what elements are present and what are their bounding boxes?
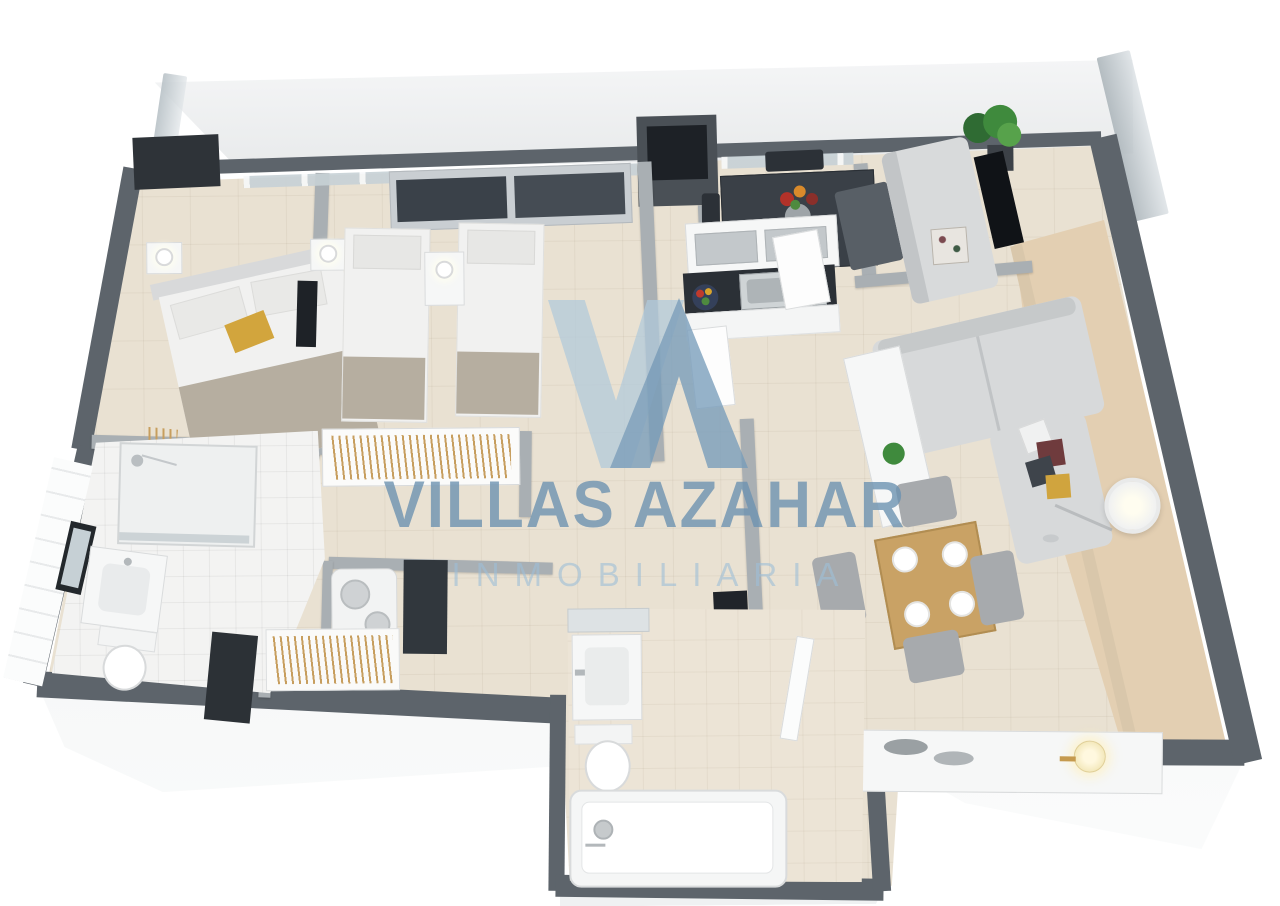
shower-arm — [142, 454, 177, 466]
appliance-front — [694, 230, 758, 266]
sofa-seat-seam — [976, 336, 1001, 434]
mirror — [567, 608, 649, 633]
tv-master-bedroom — [296, 281, 318, 348]
utility-shaft-hatch — [647, 125, 708, 181]
flowers — [806, 193, 819, 206]
plant-foliage — [997, 123, 1021, 147]
lamp-stand — [1060, 756, 1076, 761]
table-lamp — [319, 245, 337, 263]
toilet — [574, 724, 633, 789]
floral-pillow — [930, 227, 969, 266]
plate — [890, 544, 920, 574]
faucet — [575, 669, 585, 675]
nightstand — [310, 239, 346, 271]
watermark-brand-subtitle: INMOBILIARIA — [420, 556, 870, 594]
table-lamp-glow — [1074, 740, 1106, 772]
shower — [117, 442, 258, 548]
table-lamp — [435, 261, 453, 279]
floor-plan-render: VILLAS AZAHAR INMOBILIARIA — [0, 0, 1280, 906]
bathroom-vanity — [572, 634, 643, 721]
bed-blanket — [342, 356, 425, 419]
plate — [902, 599, 932, 629]
shower-glass — [119, 532, 249, 543]
toilet-bowl — [585, 740, 631, 792]
plate — [947, 589, 977, 619]
clothes-hangers — [273, 635, 393, 684]
floor-lamp-shade — [1104, 477, 1160, 533]
flowers — [793, 185, 806, 198]
decor-bowl — [884, 739, 928, 755]
fruit — [696, 289, 704, 297]
watermark-brand-name: VILLAS AZAHAR — [345, 468, 945, 543]
wardrobe-glass-panel — [514, 172, 625, 218]
decor-bowl — [934, 751, 974, 765]
bed-pillow — [467, 230, 536, 265]
faucet — [123, 557, 132, 566]
bath-shower-head — [593, 820, 613, 840]
sofa-pillow-yellow — [1045, 473, 1071, 499]
small-plant — [881, 440, 907, 466]
single-bed — [341, 227, 430, 422]
table-lamp — [155, 248, 173, 266]
hall-closet — [266, 628, 401, 691]
fruit — [705, 288, 712, 295]
ac-unit-balcony — [132, 134, 220, 190]
nightstand — [146, 242, 182, 274]
open-doorway-dark — [204, 632, 258, 724]
bathroom-vanity — [80, 546, 168, 634]
sideboard-console — [846, 729, 1163, 794]
sink-basin — [97, 563, 151, 617]
bed-blanket — [456, 351, 539, 414]
plate — [940, 539, 970, 569]
wall-bathroom-left-side — [548, 695, 566, 891]
single-bed — [455, 222, 544, 417]
bed-pillow — [353, 235, 422, 270]
bathtub-inner — [581, 802, 773, 874]
kitchen-chair — [765, 149, 824, 172]
bath-faucet — [585, 844, 605, 847]
sink-basin — [585, 647, 630, 705]
washer-drum — [340, 579, 370, 609]
bathtub — [569, 790, 787, 888]
brand-logo — [548, 298, 748, 470]
nightstand — [424, 252, 464, 306]
toilet — [92, 625, 155, 692]
wardrobe-glass-panel — [396, 176, 507, 222]
sliding-wardrobe — [389, 163, 633, 231]
